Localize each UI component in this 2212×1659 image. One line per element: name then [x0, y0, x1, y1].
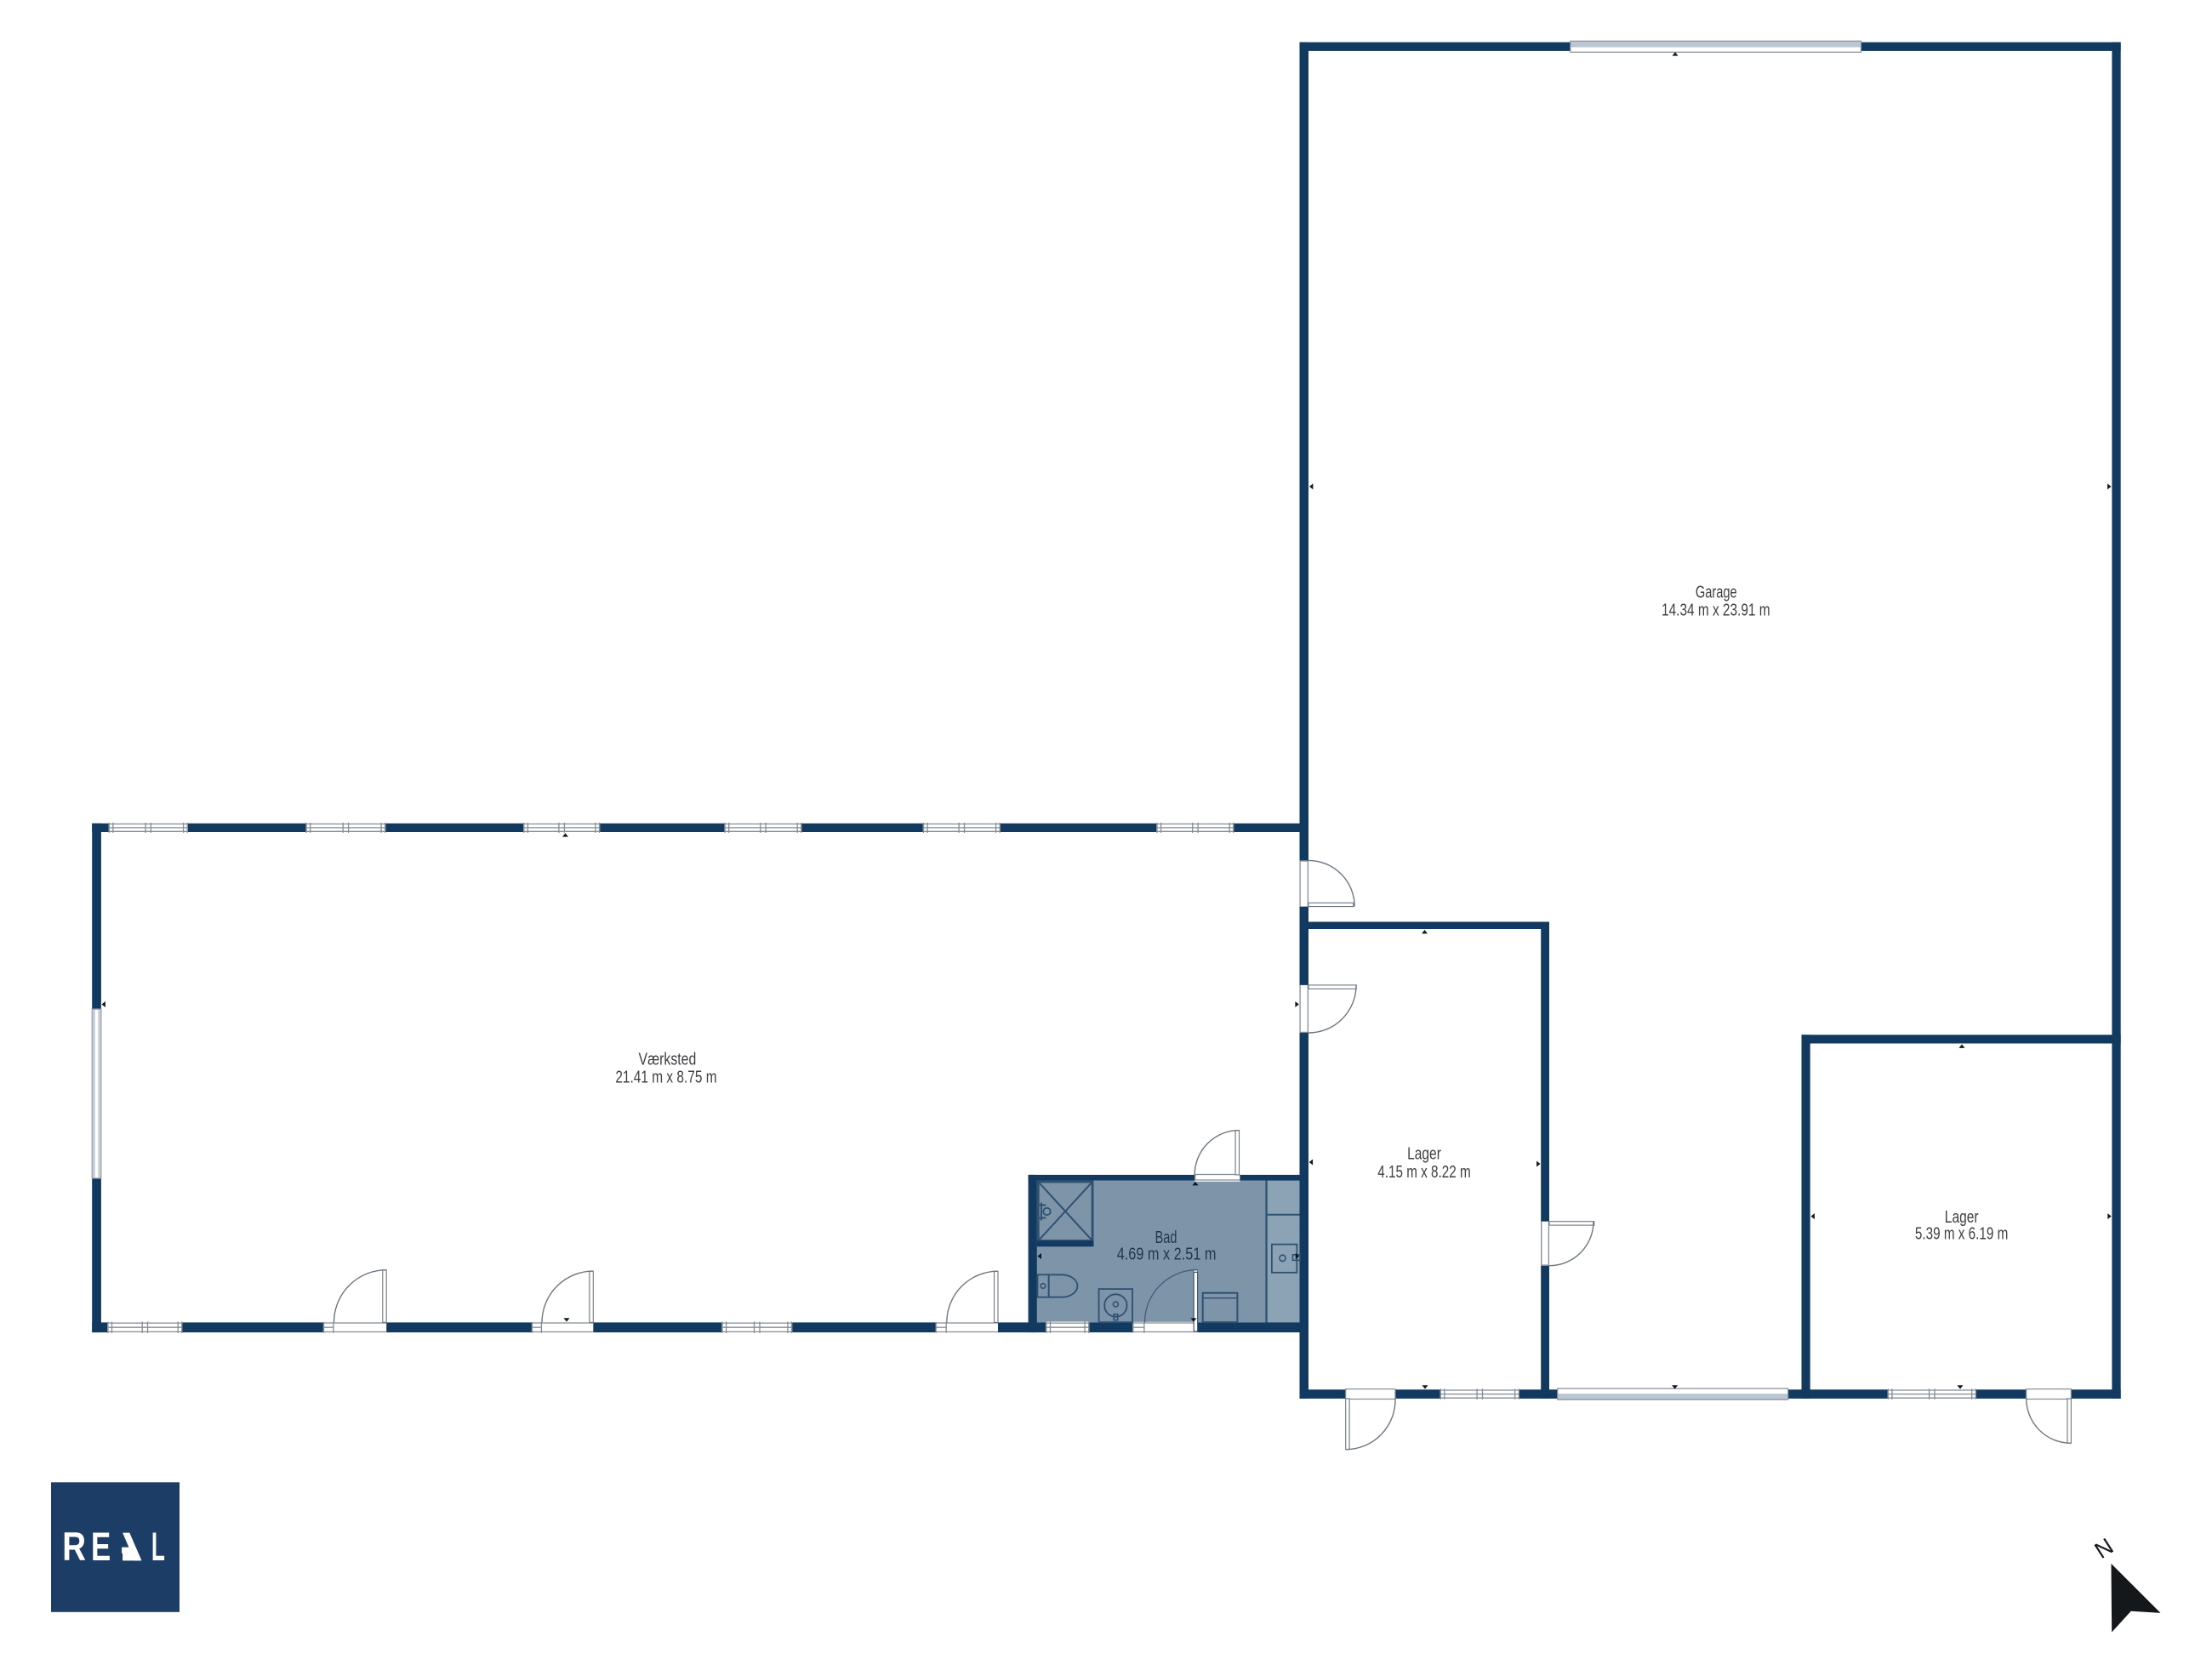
svg-text:14.34 m x 23.91 m: 14.34 m x 23.91 m [1662, 601, 1770, 620]
svg-text:5.39 m x 6.19 m: 5.39 m x 6.19 m [1915, 1225, 2008, 1244]
svg-text:R: R [62, 1525, 86, 1570]
svg-text:L: L [151, 1525, 165, 1570]
svg-text:21.41 m x 8.75 m: 21.41 m x 8.75 m [615, 1069, 716, 1087]
svg-text:E: E [91, 1525, 111, 1570]
svg-text:4.15 m x 8.22 m: 4.15 m x 8.22 m [1377, 1163, 1471, 1182]
svg-text:Værksted: Værksted [639, 1051, 697, 1069]
svg-text:Lager: Lager [1407, 1145, 1441, 1164]
svg-text:4.69 m x 2.51 m: 4.69 m x 2.51 m [1117, 1246, 1217, 1264]
svg-text:Garage: Garage [1696, 584, 1737, 602]
